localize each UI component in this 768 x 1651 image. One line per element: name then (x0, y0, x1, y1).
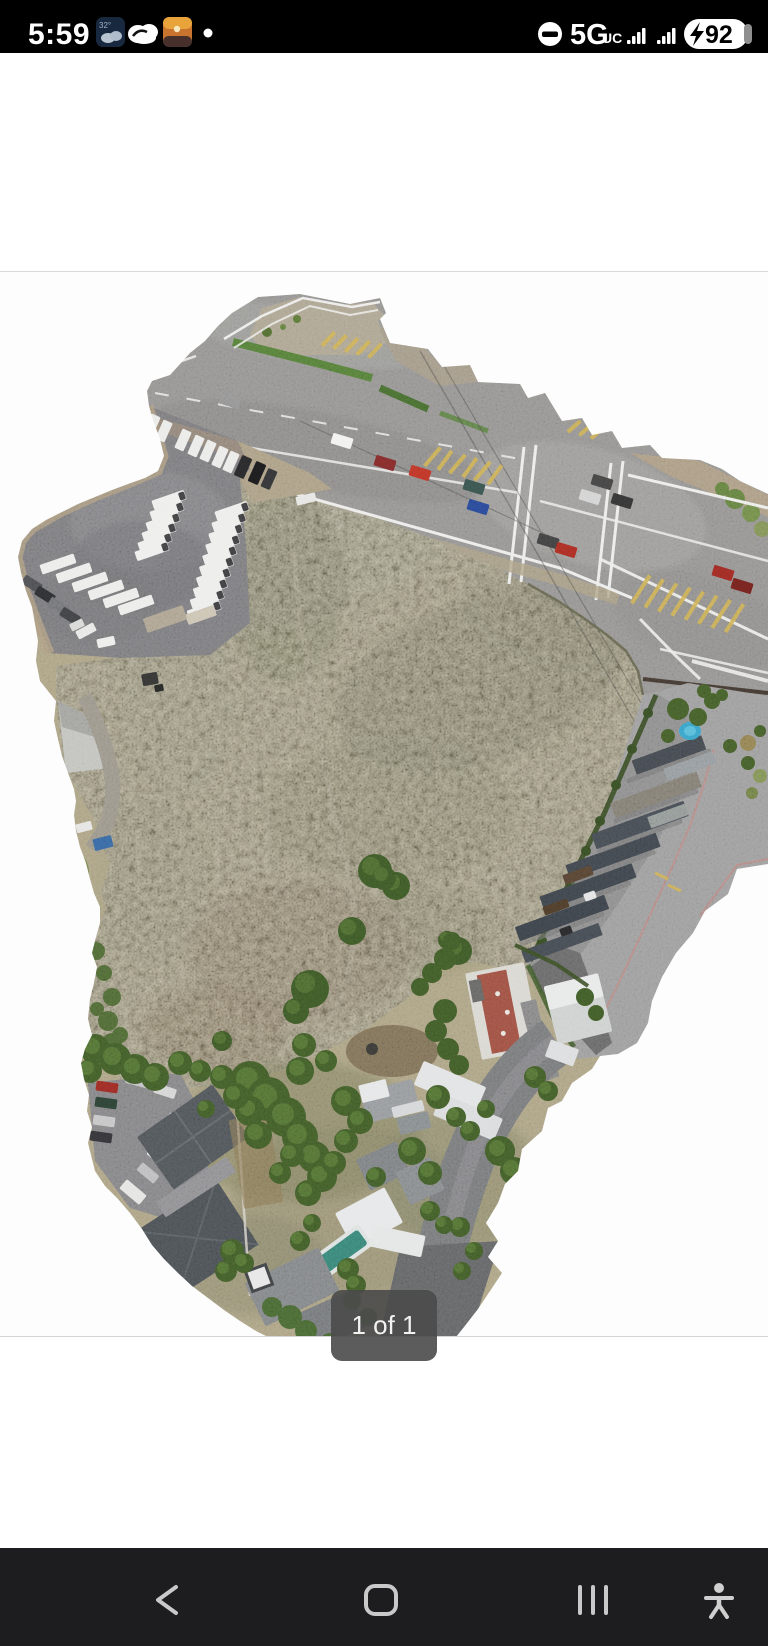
svg-text:92: 92 (705, 21, 733, 49)
svg-text:32°: 32° (99, 21, 111, 30)
svg-text:UC: UC (602, 30, 622, 46)
